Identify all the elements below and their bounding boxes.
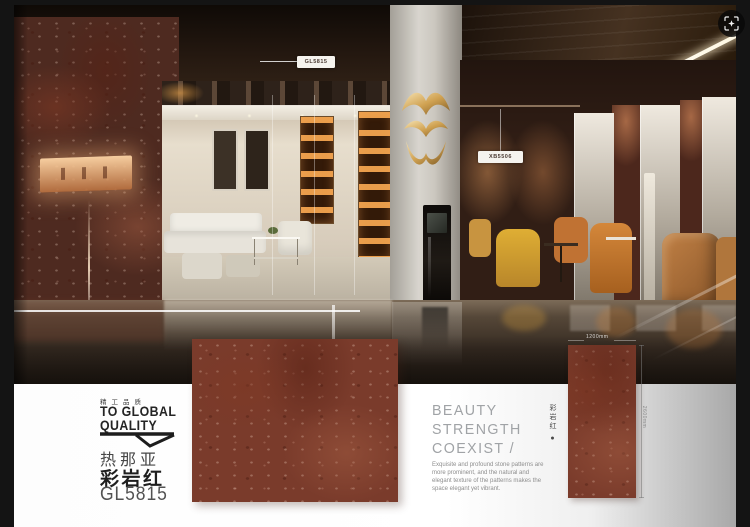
orange-chair bbox=[590, 223, 632, 293]
image-search-button[interactable] bbox=[718, 10, 745, 37]
wall-art-frame bbox=[212, 129, 238, 191]
width-dimension-line bbox=[568, 340, 584, 341]
product-description: Exquisite and profound stone patterns ar… bbox=[432, 461, 546, 493]
yellow-lounge-chair bbox=[496, 229, 540, 287]
frame-left bbox=[0, 0, 14, 527]
vertical-product-label: 彩岩红 ● bbox=[547, 404, 557, 444]
tile-swatch-right bbox=[568, 345, 636, 498]
wall-light-seam bbox=[88, 200, 90, 312]
cove-light-line bbox=[460, 105, 580, 107]
sign-calligraphy bbox=[52, 166, 124, 181]
frame-top bbox=[0, 0, 750, 5]
headline-line2: STRENGTH bbox=[432, 420, 522, 439]
plant bbox=[268, 227, 278, 234]
photo-left-shadow bbox=[14, 5, 28, 385]
product-label-left: GL5815 bbox=[297, 56, 335, 68]
poster-canvas: GL5815 XB5506 精工品质 TO GLOBAL QUALITY 热那亚… bbox=[0, 0, 750, 527]
height-dimension-label: 2600mm bbox=[641, 406, 647, 428]
showroom-photo[interactable]: GL5815 XB5506 bbox=[14, 5, 736, 385]
kiosk-marble-streak bbox=[428, 237, 431, 297]
coffee-table-top bbox=[252, 237, 300, 239]
product-label-right: XB5506 bbox=[478, 151, 523, 163]
side-table-leg bbox=[560, 246, 562, 282]
bar-stool bbox=[469, 219, 491, 257]
coffee-table-leg bbox=[254, 239, 255, 265]
glass-partition bbox=[272, 95, 273, 295]
width-dimension-line bbox=[614, 340, 636, 341]
kiosk-screen bbox=[427, 213, 447, 233]
brand-emblem-icon bbox=[398, 85, 454, 171]
dimension-tick bbox=[639, 497, 644, 498]
wall-art-frame bbox=[244, 129, 270, 191]
dining-table-top bbox=[606, 237, 636, 240]
display-shelf bbox=[358, 111, 392, 261]
floor-reflection-chair bbox=[596, 307, 636, 337]
label-pointer-line bbox=[500, 109, 501, 151]
tile-swatch-center bbox=[192, 339, 398, 502]
floor-reflection-chair bbox=[502, 305, 546, 331]
glass-partition bbox=[354, 95, 355, 295]
floor-junction-light-line bbox=[14, 310, 360, 312]
sofa-seat bbox=[164, 231, 266, 253]
armchair-clipped bbox=[716, 237, 736, 309]
dimension-tick bbox=[639, 345, 644, 346]
width-dimension-label: 1200mm bbox=[586, 334, 608, 340]
glass-partition bbox=[314, 95, 315, 295]
coffee-table-shelf bbox=[254, 257, 298, 259]
frame-right bbox=[736, 0, 750, 527]
label-pointer-line bbox=[260, 61, 297, 62]
headline-line1: BEAUTY bbox=[432, 401, 498, 420]
coffee-table-leg bbox=[297, 239, 298, 265]
headline-line3: COEXIST / bbox=[432, 439, 515, 458]
product-label-left-text: GL5815 bbox=[305, 59, 328, 65]
mirror-gold-glint bbox=[162, 81, 222, 105]
chaise-lounge bbox=[182, 253, 222, 279]
product-label-right-text: XB5506 bbox=[489, 154, 512, 160]
image-search-icon bbox=[724, 16, 739, 31]
product-code: GL5815 bbox=[100, 484, 168, 506]
showroom-alcove bbox=[162, 81, 392, 307]
floor-lamp-pillar bbox=[644, 173, 655, 303]
display-shelf bbox=[300, 116, 334, 224]
